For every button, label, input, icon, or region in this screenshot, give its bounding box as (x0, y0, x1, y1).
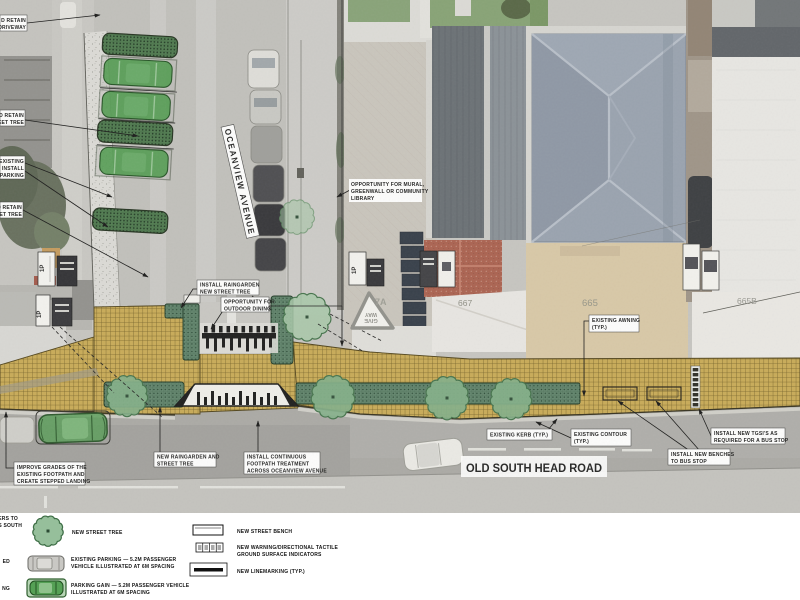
svg-text:NEW STREET BENCH: NEW STREET BENCH (237, 529, 292, 535)
svg-text:NG: NG (2, 586, 10, 592)
svg-text:NEW STREET TREE: NEW STREET TREE (72, 530, 123, 536)
svg-text:ERS TO: ERS TO (0, 516, 18, 522)
svg-text:S SOUTH: S SOUTH (0, 523, 22, 529)
svg-text:NEW LINEMARKING (TYP.): NEW LINEMARKING (TYP.) (237, 569, 305, 575)
svg-text:NEW WARNING/DIRECTIONAL TACTIL: NEW WARNING/DIRECTIONAL TACTILE (237, 545, 338, 551)
svg-text:PARKING GAIN — 5.2M PASSENGER: PARKING GAIN — 5.2M PASSENGER VEHICLE (71, 583, 190, 589)
svg-text:ED: ED (3, 559, 11, 565)
svg-text:EXISTING PARKING — 5.2M PASSEN: EXISTING PARKING — 5.2M PASSENGER (71, 557, 177, 563)
svg-text:GROUND SURFACE INDICATORS: GROUND SURFACE INDICATORS (237, 552, 322, 558)
svg-text:VEHICLE ILLUSTRATED AT 6M SPAC: VEHICLE ILLUSTRATED AT 6M SPACING (71, 564, 175, 570)
svg-text:ILLUSTRATED AT 6M SPACING: ILLUSTRATED AT 6M SPACING (71, 590, 150, 596)
